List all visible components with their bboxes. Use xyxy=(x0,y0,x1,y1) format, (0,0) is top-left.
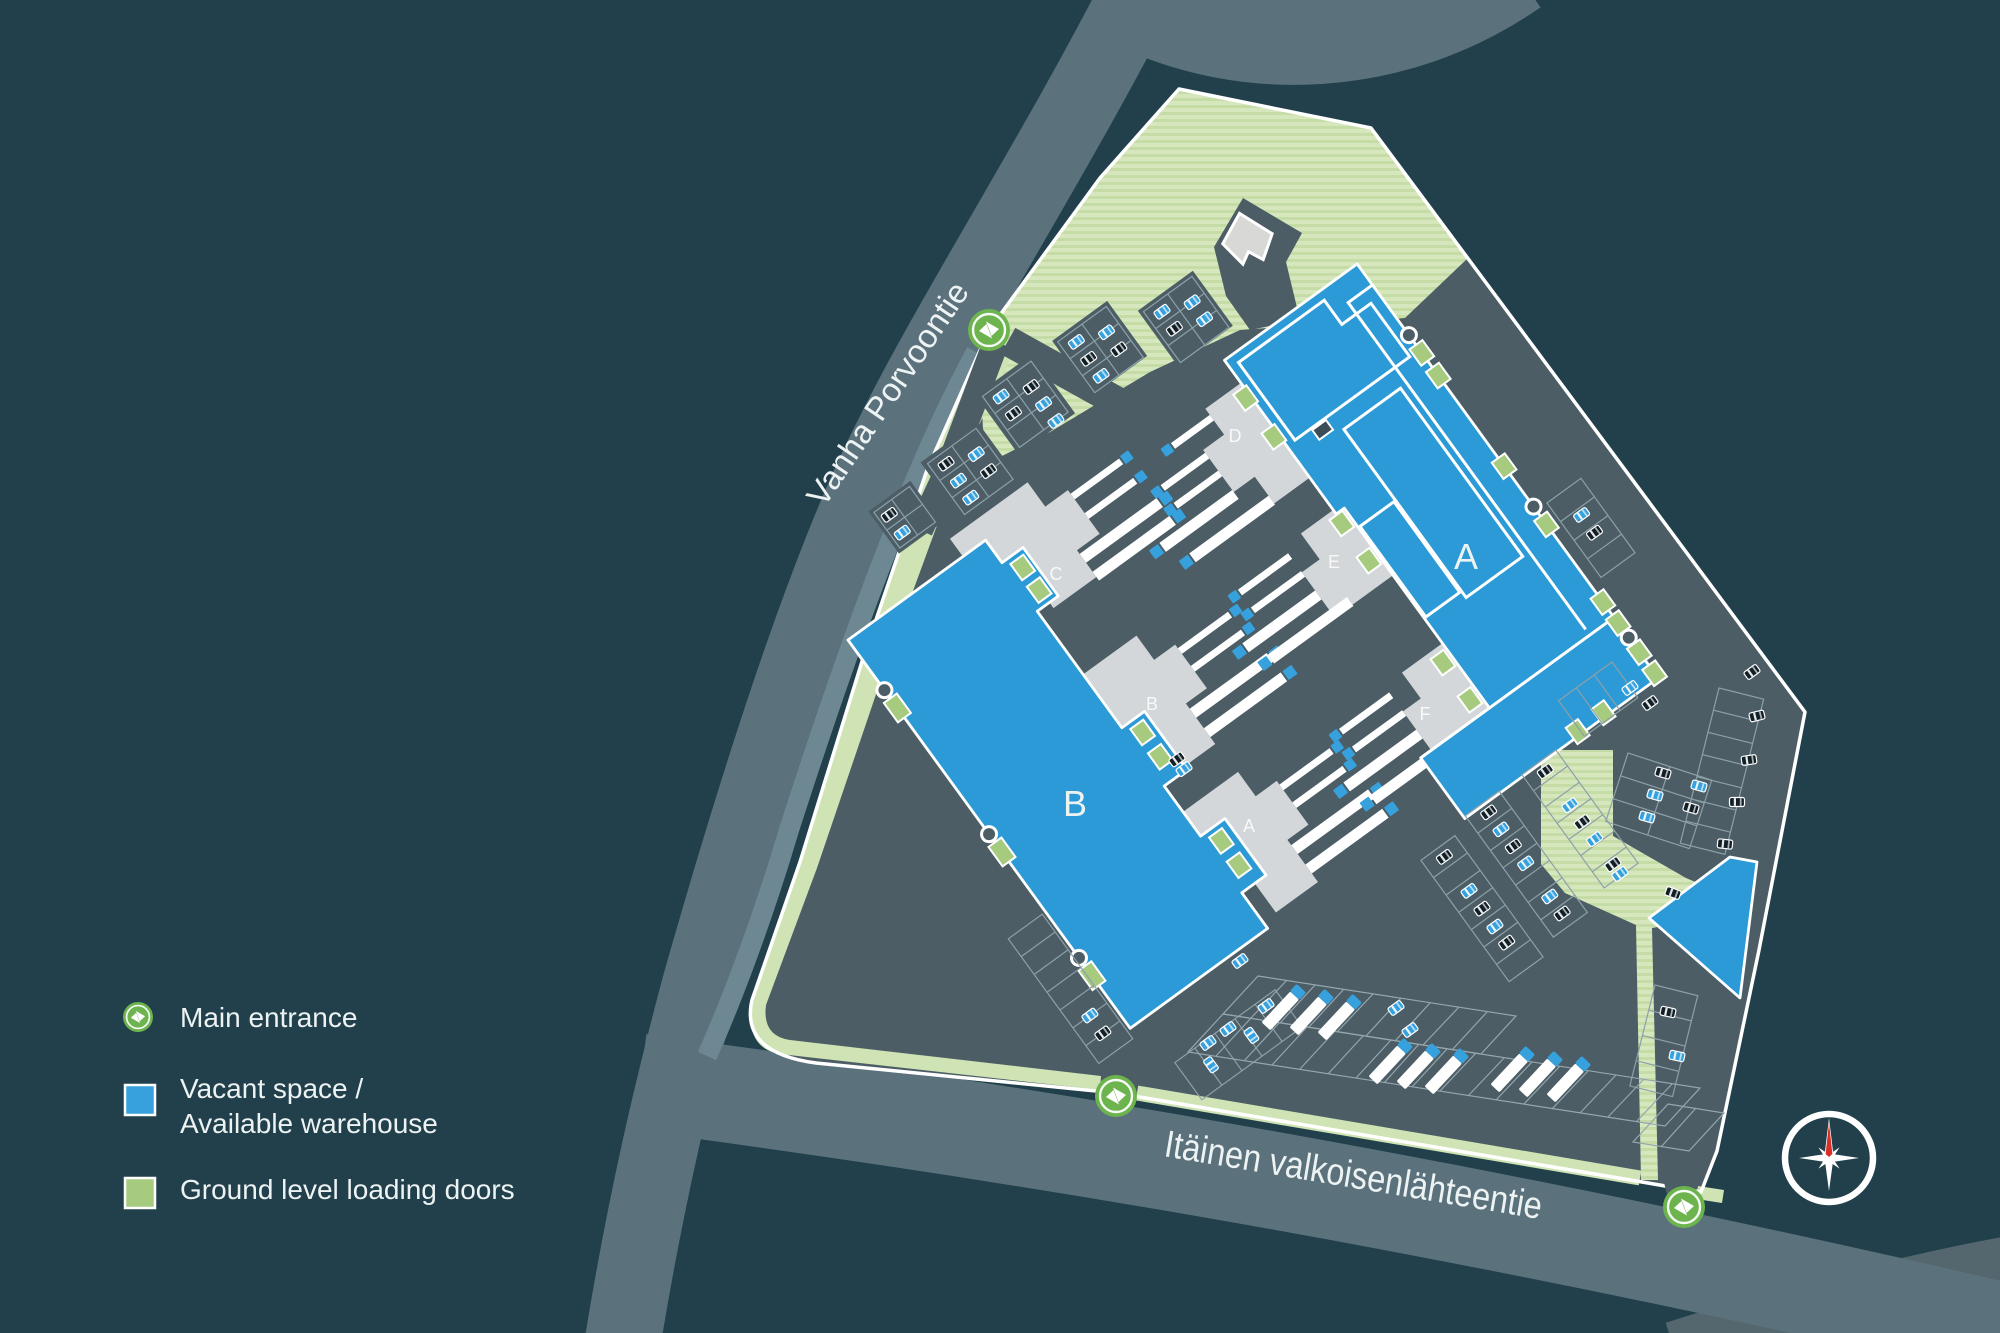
svg-text:E: E xyxy=(1328,552,1340,572)
svg-text:Vacant space /: Vacant space / xyxy=(180,1073,363,1104)
svg-text:A: A xyxy=(1243,816,1255,836)
svg-text:A: A xyxy=(1454,536,1478,577)
svg-text:Ground level loading doors: Ground level loading doors xyxy=(180,1174,515,1205)
svg-text:Available warehouse: Available warehouse xyxy=(180,1108,438,1139)
svg-text:D: D xyxy=(1229,426,1242,446)
svg-text:B: B xyxy=(1063,783,1087,824)
svg-text:B: B xyxy=(1146,694,1158,714)
svg-text:F: F xyxy=(1420,704,1431,724)
svg-text:C: C xyxy=(1050,564,1063,584)
svg-text:Main entrance: Main entrance xyxy=(180,1002,357,1033)
